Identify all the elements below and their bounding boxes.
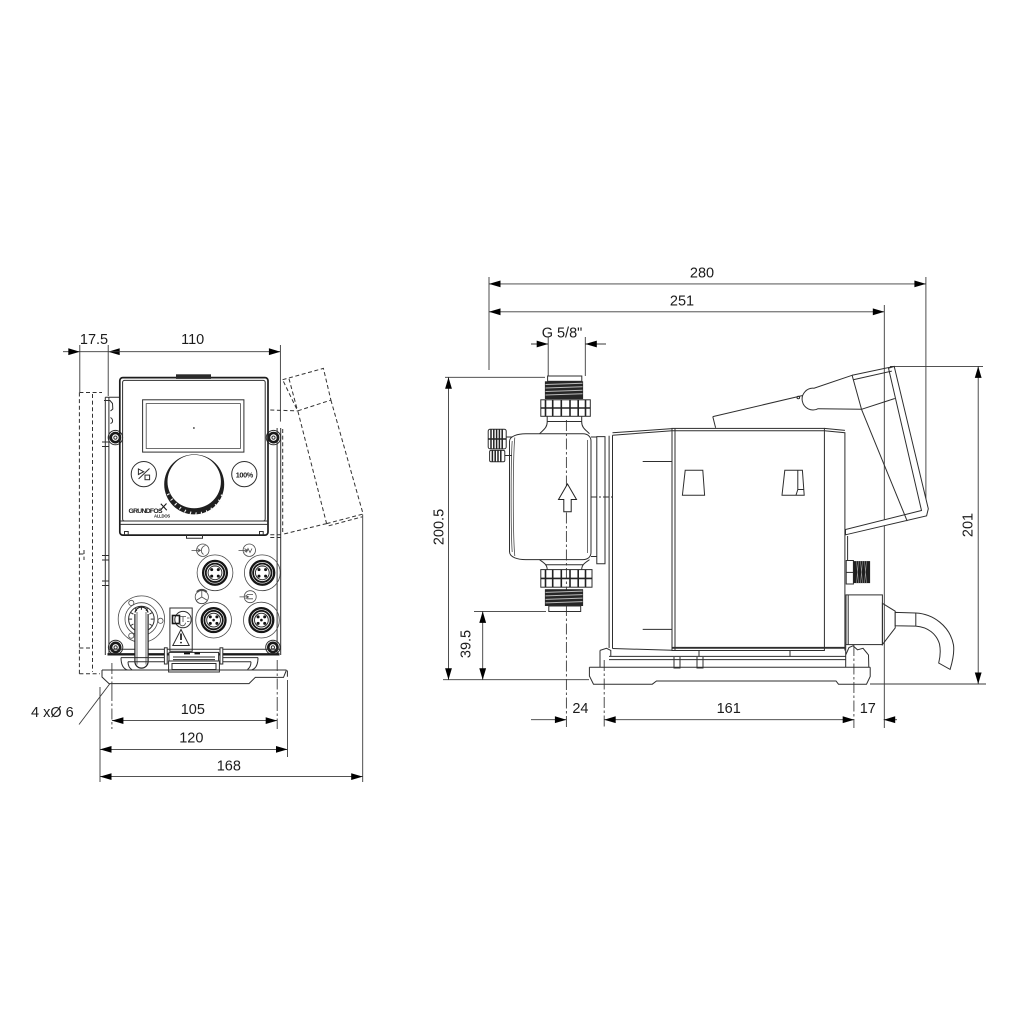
svg-text:200.5: 200.5: [432, 509, 448, 545]
svg-text:17: 17: [860, 701, 876, 717]
svg-text:120: 120: [179, 731, 203, 747]
svg-text:280: 280: [690, 266, 714, 282]
svg-text:251: 251: [670, 294, 694, 310]
svg-text:168: 168: [217, 758, 241, 774]
svg-text:17.5: 17.5: [80, 332, 108, 348]
svg-text:24: 24: [572, 701, 588, 717]
svg-text:100%: 100%: [236, 470, 254, 479]
svg-text:110: 110: [181, 332, 204, 348]
svg-text:4 xØ 6: 4 xØ 6: [31, 705, 74, 721]
svg-text:G 5/8": G 5/8": [542, 326, 583, 342]
svg-text:105: 105: [181, 702, 205, 718]
svg-text:201: 201: [961, 513, 977, 537]
svg-text:39.5: 39.5: [459, 630, 475, 658]
svg-text:ALLDOS: ALLDOS: [154, 514, 170, 519]
svg-text:161: 161: [717, 701, 741, 717]
